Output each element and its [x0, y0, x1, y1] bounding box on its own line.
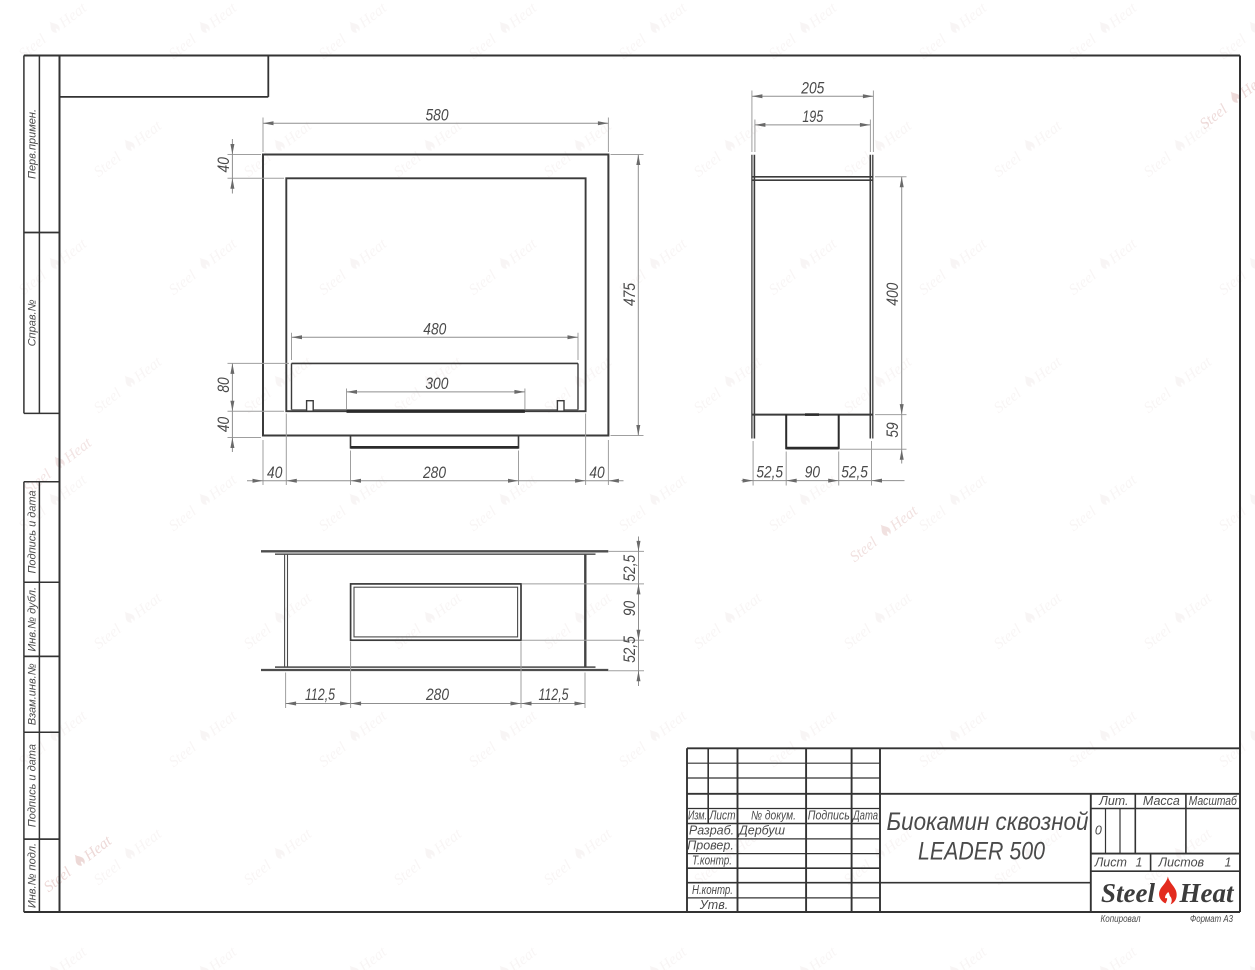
svg-text:Подпись: Подпись — [808, 808, 850, 822]
svg-text:90: 90 — [805, 464, 821, 482]
svg-text:80: 80 — [215, 377, 233, 393]
svg-text:Биокамин сквозной: Биокамин сквозной — [887, 808, 1089, 836]
svg-text:40: 40 — [589, 464, 605, 482]
svg-text:Разраб.: Разраб. — [689, 824, 734, 838]
svg-text:59: 59 — [884, 422, 902, 437]
svg-text:112,5: 112,5 — [538, 686, 569, 704]
svg-text:Формат А3: Формат А3 — [1190, 914, 1233, 925]
svg-text:Steel: Steel — [1101, 878, 1155, 908]
svg-text:Масса: Масса — [1143, 794, 1180, 808]
svg-text:Подпись и дата: Подпись и дата — [27, 744, 39, 827]
svg-text:Н.контр.: Н.контр. — [692, 883, 733, 897]
svg-text:LEADER 500: LEADER 500 — [918, 837, 1045, 865]
svg-text:Дата: Дата — [851, 808, 878, 822]
svg-text:Лист: Лист — [709, 808, 736, 822]
svg-text:52,5: 52,5 — [621, 554, 639, 581]
svg-text:Инв.№ подл.: Инв.№ подл. — [27, 843, 39, 908]
svg-text:Подпись и дата: Подпись и дата — [27, 490, 39, 573]
svg-text:Провер.: Провер. — [687, 839, 734, 853]
svg-text:Взам.инв.№: Взам.инв.№ — [27, 663, 39, 725]
svg-text:1: 1 — [1225, 856, 1232, 870]
svg-text:40: 40 — [267, 464, 283, 482]
svg-text:90: 90 — [621, 600, 639, 616]
svg-text:Утв.: Утв. — [699, 898, 728, 912]
svg-text:1: 1 — [1136, 856, 1143, 870]
svg-text:Перв.примен.: Перв.примен. — [27, 109, 39, 179]
svg-text:112,5: 112,5 — [305, 686, 336, 704]
svg-text:300: 300 — [425, 375, 449, 393]
svg-text:Лист: Лист — [1094, 856, 1127, 870]
svg-text:Справ.№: Справ.№ — [27, 299, 39, 346]
svg-text:280: 280 — [425, 686, 450, 704]
svg-text:0: 0 — [1095, 824, 1102, 838]
svg-text:Листов: Листов — [1158, 856, 1205, 870]
svg-text:400: 400 — [884, 282, 902, 306]
svg-text:195: 195 — [802, 108, 824, 126]
svg-text:Копировал: Копировал — [1101, 914, 1141, 925]
svg-text:280: 280 — [422, 464, 447, 482]
svg-text:Heat: Heat — [1179, 878, 1235, 908]
svg-text:52,5: 52,5 — [841, 464, 868, 482]
svg-text:480: 480 — [423, 320, 447, 338]
svg-text:40: 40 — [215, 156, 233, 172]
svg-text:Дербуш: Дербуш — [737, 824, 786, 838]
svg-text:205: 205 — [800, 79, 825, 97]
svg-text:580: 580 — [426, 106, 450, 124]
svg-text:Инв.№ дубл.: Инв.№ дубл. — [27, 587, 39, 652]
svg-text:№ докум.: № докум. — [751, 808, 796, 822]
svg-text:Масштаб: Масштаб — [1189, 794, 1238, 808]
svg-text:Лит.: Лит. — [1098, 794, 1128, 808]
svg-text:52,5: 52,5 — [756, 464, 783, 482]
svg-text:Изм.: Изм. — [688, 808, 707, 822]
svg-text:40: 40 — [215, 416, 233, 432]
svg-text:52,5: 52,5 — [621, 636, 639, 663]
svg-text:475: 475 — [621, 282, 639, 306]
svg-text:Т.контр.: Т.контр. — [692, 854, 732, 868]
